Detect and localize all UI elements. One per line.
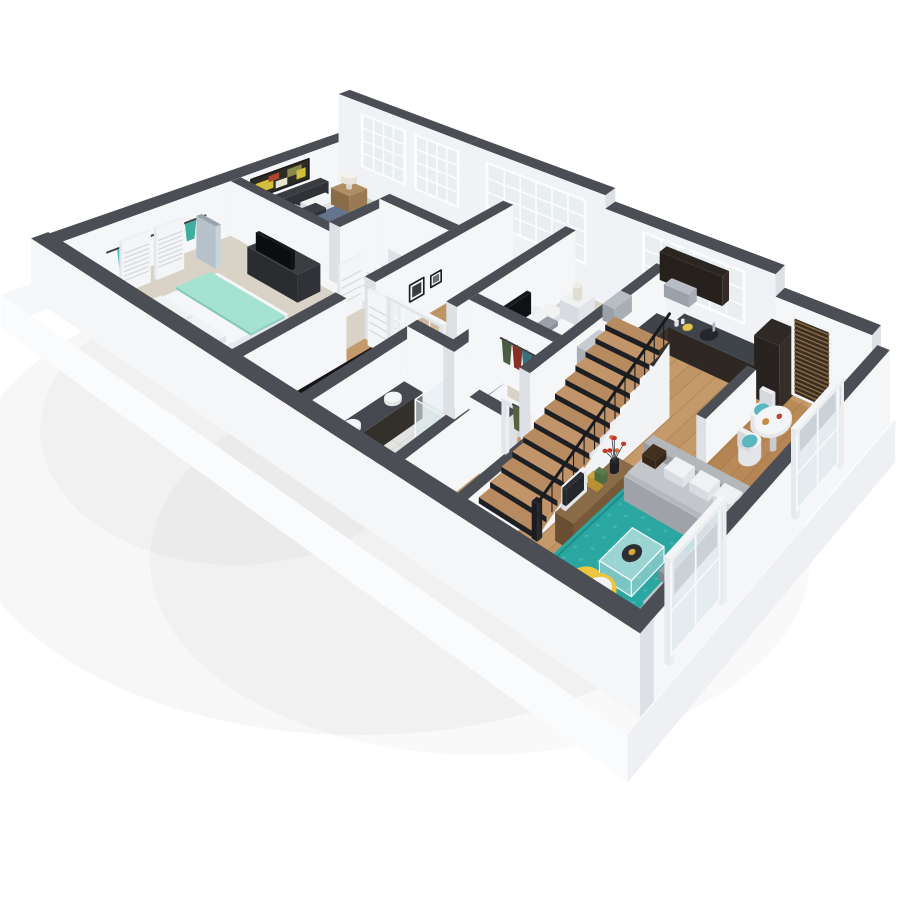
vessel-sink-2 <box>384 392 402 407</box>
lamp-blue-shade <box>341 172 357 185</box>
counter-jar-1 <box>674 320 678 327</box>
floor-plan-canvas <box>0 0 900 900</box>
floor-plan-rendering <box>0 0 900 900</box>
counter-jar-2 <box>681 319 685 325</box>
closet-door-master-2 <box>154 217 184 280</box>
kitchen-faucet <box>713 322 716 332</box>
lamp-bed2 <box>573 283 582 301</box>
